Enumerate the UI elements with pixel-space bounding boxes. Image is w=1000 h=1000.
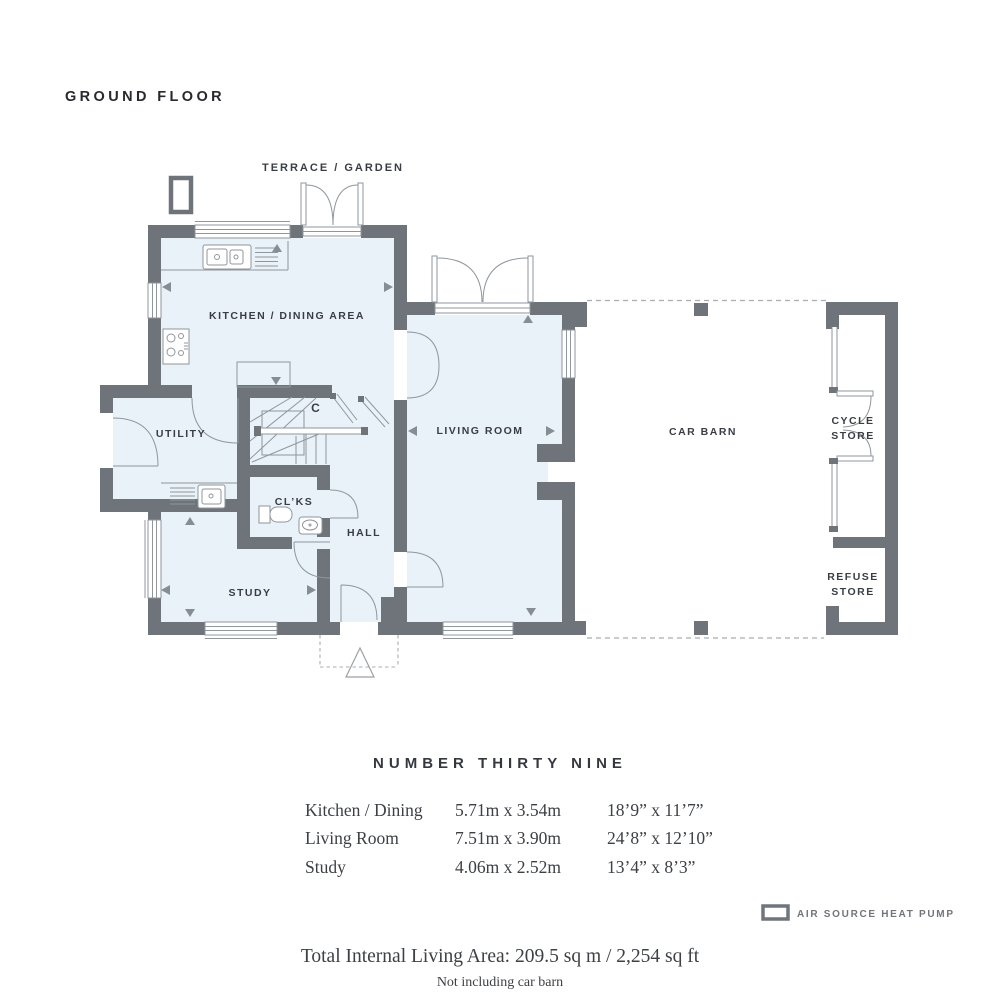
room-label-living: LIVING ROOM [436,425,523,437]
room-label-car-barn: CAR BARN [669,426,737,438]
table-cell-metric: 4.06m x 2.52m [455,857,561,877]
car-barn-boundary [587,301,826,639]
window-kitchen-left [148,283,161,318]
legend: AIR SOURCE HEAT PUMP [763,906,955,920]
window-living-bottom [443,622,513,639]
fireplace-recess [548,462,575,482]
room-label-study: STUDY [228,587,271,599]
details-heading: NUMBER THIRTY NINE [373,755,627,772]
room-label-cycle-store-1: CYCLE [831,415,874,427]
room-label-hall: HALL [347,527,381,539]
total-area-note: Not including car barn [437,975,563,990]
heat-pump-icon [171,178,191,212]
total-area-text: Total Internal Living Area: 209.5 sq m /… [301,946,700,967]
floor-plan-page: GROUND FLOOR TERRACE / GARDEN [0,0,1000,1000]
entrance-porch [320,635,398,677]
room-label-refuse-store-1: REFUSE [827,571,879,583]
hob-icon [163,329,189,364]
window-study-left [145,520,161,598]
room-label-cloakroom: CL’KS [275,496,313,508]
window-study-bottom [205,622,277,639]
table-cell-room: Living Room [305,828,399,848]
table-cell-metric: 5.71m x 3.54m [455,800,561,820]
terrace-french-doors [301,183,363,236]
table-cell-room: Study [305,857,346,877]
terrace-garden-label: TERRACE / GARDEN [262,162,404,174]
basin-icon [299,517,322,534]
dimensions-table: Kitchen / Dining 5.71m x 3.54m 18’9” x 1… [305,800,713,877]
table-cell-imperial: 13’4” x 8’3” [607,857,695,877]
table-cell-metric: 7.51m x 3.90m [455,828,561,848]
table-cell-imperial: 24’8” x 12’10” [607,828,713,848]
living-french-doors [432,256,533,313]
window-kitchen-top [195,222,290,239]
room-label-cycle-store-2: STORE [831,430,874,442]
room-label-cupboard: C [311,401,321,415]
legend-label: AIR SOURCE HEAT PUMP [797,909,955,920]
room-label-utility: UTILITY [156,428,206,440]
page-title: GROUND FLOOR [65,89,225,105]
heat-pump-legend-icon [763,906,788,919]
room-label-kitchen: KITCHEN / DINING AREA [209,310,365,322]
table-cell-room: Kitchen / Dining [305,800,423,820]
window-living-right [562,330,575,378]
table-cell-imperial: 18’9” x 11’7” [607,800,704,820]
entrance-marker [346,648,374,677]
room-label-refuse-store-2: STORE [831,586,874,598]
wc-icon [259,506,292,523]
